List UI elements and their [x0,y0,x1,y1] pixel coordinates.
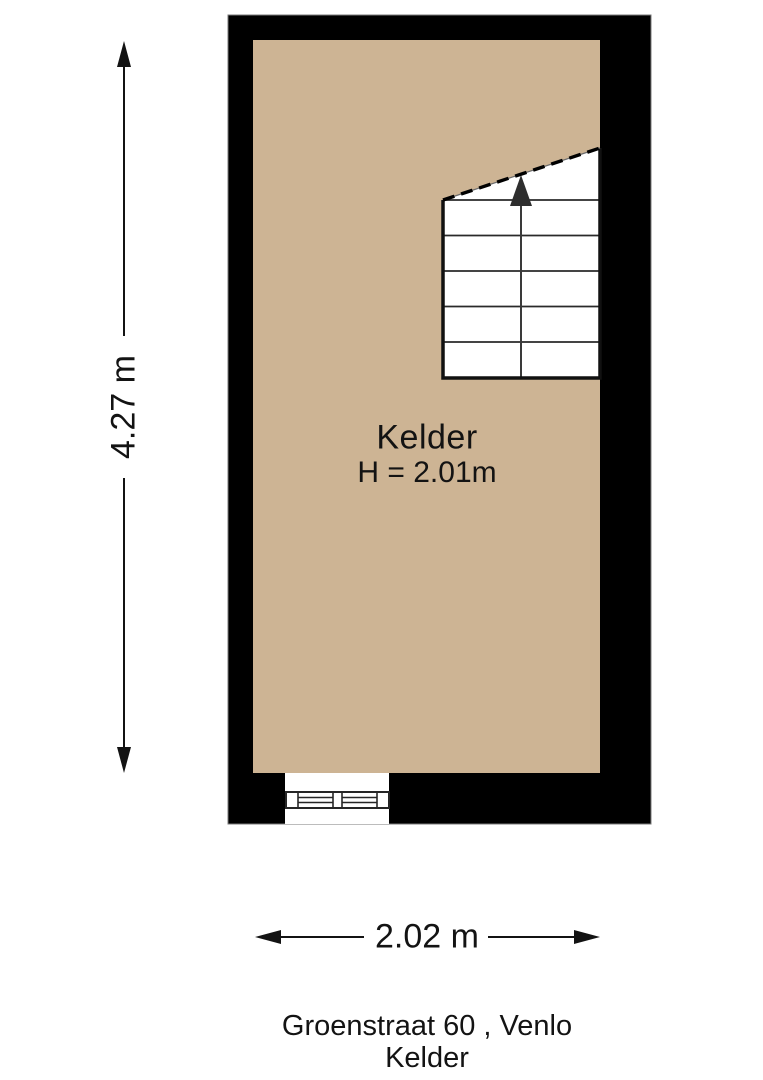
arrow-down-icon [117,747,131,773]
arrow-up-icon [117,41,131,67]
dimension-width-label: 2.02 m [375,918,479,957]
window-frame [286,792,389,808]
caption-floor: Kelder [282,1042,572,1074]
caption-address: Groenstraat 60 , Venlo [282,1010,572,1042]
room-height-label: H = 2.01m [357,456,496,490]
room-label: Kelder [376,419,477,458]
caption: Groenstraat 60 , Venlo Kelder [282,1010,572,1074]
floorplan-canvas: Kelder H = 2.01m 4.27 m 2.02 m Groenstra… [0,0,763,1080]
arrow-left-icon [255,930,281,944]
floor-area [253,40,600,773]
window-symbol [286,792,389,808]
arrow-right-icon [574,930,600,944]
dimension-height-label: 4.27 m [105,355,144,459]
